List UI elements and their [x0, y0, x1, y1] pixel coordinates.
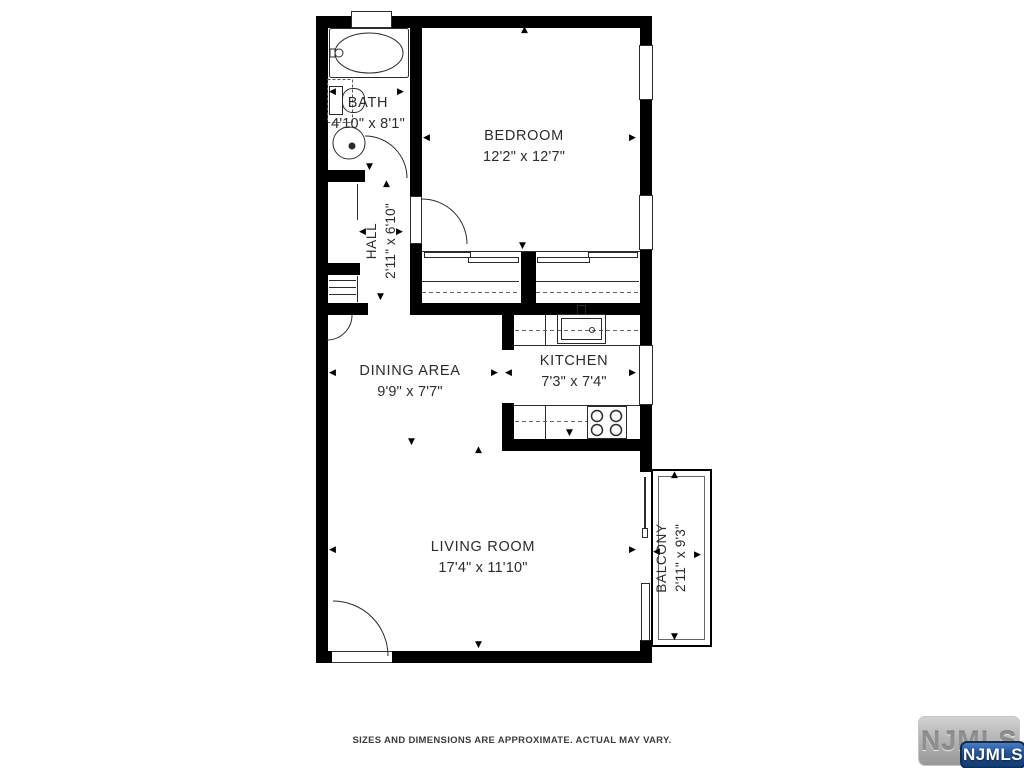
room-dims: 2'11" x 9'3" [671, 488, 690, 628]
room-dims: 2'11" x 6'10" [381, 181, 400, 301]
dimension-arrow-left-icon: ◀ [329, 546, 336, 555]
entry-door [333, 601, 388, 656]
dimension-arrow-right-icon: ▶ [491, 369, 498, 378]
room-dims: 12'2" x 12'7" [444, 147, 604, 168]
dimension-arrow-right-icon: ▶ [397, 88, 404, 97]
balcony-sliding-door [642, 477, 650, 641]
hall-closet-door [327, 315, 352, 340]
room-dims: 9'9" x 7'7" [330, 382, 490, 403]
floor-plan: BATH 4'10" x 8'1" BEDROOM 12'2" x 12'7" … [0, 0, 1024, 768]
room-label-living: LIVING ROOM 17'4" x 11'10" [403, 537, 563, 579]
dimension-arrow-down-icon: ▼ [366, 163, 373, 172]
kitchen-counter-bottom [514, 406, 640, 440]
disclaimer-text: SIZES AND DIMENSIONS ARE APPROXIMATE. AC… [0, 735, 1024, 746]
dimension-arrow-down-icon: ▼ [566, 429, 573, 438]
dimension-arrow-up-icon: ▲ [671, 471, 678, 480]
njmls-logo-text: NJMLS [963, 745, 1023, 765]
dimension-arrow-up-icon: ▲ [521, 26, 528, 35]
room-name: BEDROOM [444, 126, 604, 147]
dimension-arrow-left-icon: ◀ [329, 369, 336, 378]
room-name: HALL [362, 181, 381, 301]
dimension-arrow-down-icon: ▼ [519, 242, 526, 251]
bedroom-window-1 [639, 45, 653, 100]
dimension-arrow-left-icon: ◀ [423, 134, 430, 143]
dimension-arrow-down-icon: ▼ [475, 641, 482, 650]
dimension-arrow-left-icon: ◀ [653, 548, 660, 557]
room-label-bath: BATH 4'10" x 8'1" [288, 93, 448, 135]
bath-window [351, 11, 392, 28]
dimension-arrow-right-icon: ▶ [629, 546, 636, 555]
room-name: BATH [288, 93, 448, 114]
room-label-dining: DINING AREA 9'9" x 7'7" [330, 361, 490, 403]
dimension-arrow-up-icon: ▲ [383, 180, 390, 189]
dimension-arrow-down-icon: ▼ [671, 633, 678, 642]
room-dims: 17'4" x 11'10" [403, 558, 563, 579]
dimension-arrow-left-icon: ◀ [329, 88, 336, 97]
dimension-arrow-right-icon: ▶ [694, 551, 701, 560]
room-label-balcony: BALCONY 2'11" x 9'3" [652, 488, 692, 628]
closet-sliding-doors [422, 252, 640, 293]
room-name: BALCONY [652, 488, 671, 628]
room-label-bedroom: BEDROOM 12'2" x 12'7" [444, 126, 604, 168]
room-name: LIVING ROOM [403, 537, 563, 558]
room-label-hall: HALL 2'11" x 6'10" [362, 181, 402, 301]
dimension-arrow-down-icon: ▼ [408, 438, 415, 447]
bedroom-door [411, 197, 468, 245]
bedroom-window-2 [639, 195, 653, 250]
dimension-arrow-left-icon: ◀ [359, 228, 366, 237]
bathtub [330, 29, 409, 78]
dimension-arrow-right-icon: ▶ [629, 369, 636, 378]
dimension-arrow-down-icon: ▼ [377, 293, 384, 302]
dimension-arrow-up-icon: ▲ [475, 446, 482, 455]
kitchen-counter-top [514, 315, 640, 346]
njmls-logo-badge: NJMLS [960, 741, 1024, 768]
kitchen-sink [558, 306, 606, 344]
dimension-arrow-left-icon: ◀ [505, 369, 512, 378]
room-name: DINING AREA [330, 361, 490, 382]
room-dims: 4'10" x 8'1" [288, 114, 448, 135]
hall-closet [329, 184, 358, 302]
dimension-arrow-right-icon: ▶ [396, 228, 403, 237]
stove [588, 407, 627, 439]
dimension-arrow-right-icon: ▶ [629, 134, 636, 143]
